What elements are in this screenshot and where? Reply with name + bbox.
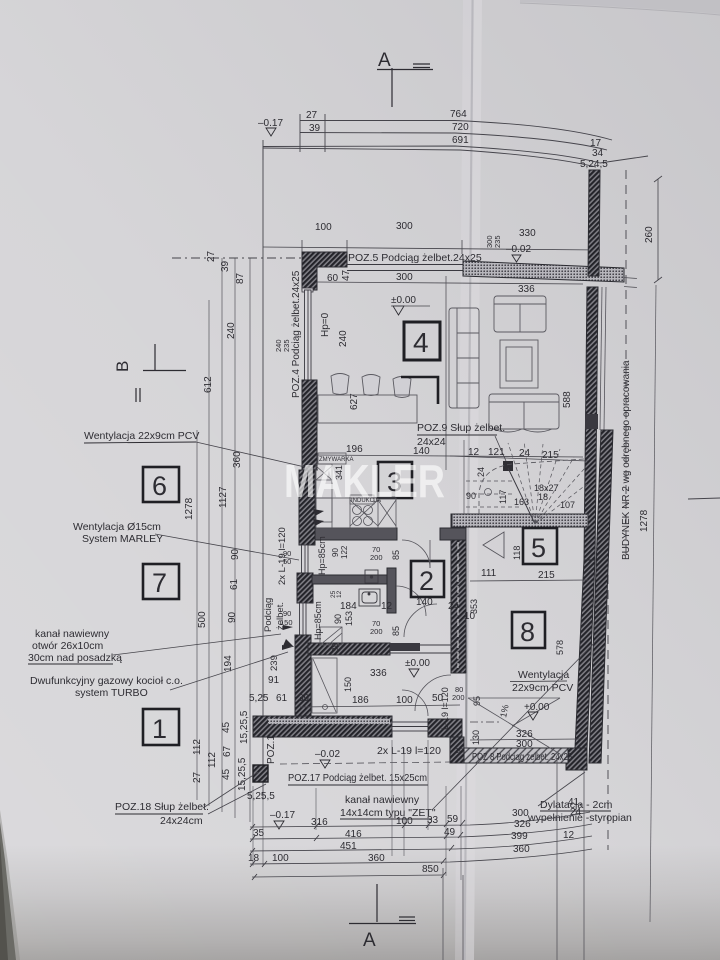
svg-text:200: 200 bbox=[370, 553, 383, 562]
svg-text:184: 184 bbox=[340, 601, 357, 612]
svg-text:6: 6 bbox=[152, 471, 167, 501]
svg-text:90: 90 bbox=[333, 614, 343, 624]
svg-text:194: 194 bbox=[223, 655, 234, 672]
svg-text:kanał nawiewny: kanał nawiewny bbox=[345, 794, 420, 806]
svg-text:122: 122 bbox=[340, 545, 349, 559]
svg-text:Hp=0: Hp=0 bbox=[320, 312, 331, 337]
svg-text:100: 100 bbox=[272, 853, 289, 864]
svg-text:67: 67 bbox=[222, 745, 233, 757]
svg-text:MAKLER: MAKLER bbox=[284, 455, 445, 507]
svg-text:240: 240 bbox=[226, 322, 237, 339]
svg-text:5,25: 5,25 bbox=[249, 693, 269, 704]
svg-text:24x24cm: 24x24cm bbox=[160, 815, 203, 827]
svg-text:5,25,5: 5,25,5 bbox=[247, 791, 275, 802]
svg-text:163: 163 bbox=[514, 497, 529, 507]
svg-text:300: 300 bbox=[396, 272, 413, 283]
svg-text:85: 85 bbox=[391, 550, 401, 560]
svg-text:system TURBO: system TURBO bbox=[75, 687, 148, 699]
svg-text:39: 39 bbox=[309, 123, 321, 134]
svg-text:336: 336 bbox=[518, 284, 535, 295]
svg-text:90: 90 bbox=[227, 611, 238, 623]
svg-text:2: 2 bbox=[419, 566, 434, 596]
svg-text:850: 850 bbox=[422, 864, 439, 875]
svg-text:Dwufunkcyjny gazowy kocioł c.o: Dwufunkcyjny gazowy kocioł c.o. bbox=[30, 675, 183, 687]
svg-text:27: 27 bbox=[206, 250, 217, 262]
svg-text:8: 8 bbox=[520, 617, 535, 647]
svg-text:A: A bbox=[378, 50, 391, 71]
svg-text:33: 33 bbox=[427, 815, 439, 826]
svg-text:18: 18 bbox=[538, 492, 548, 502]
svg-text:Hp=85cm: Hp=85cm bbox=[317, 536, 327, 575]
svg-text:578: 578 bbox=[555, 640, 565, 655]
svg-text:336: 336 bbox=[370, 668, 387, 679]
svg-text:107: 107 bbox=[560, 500, 575, 510]
svg-text:24: 24 bbox=[476, 467, 486, 477]
svg-text:150: 150 bbox=[343, 677, 353, 692]
svg-text:111: 111 bbox=[481, 568, 497, 579]
svg-text:27: 27 bbox=[306, 110, 318, 121]
svg-text:316: 316 bbox=[311, 817, 328, 828]
svg-text:System MARLEY: System MARLEY bbox=[82, 533, 163, 545]
svg-text:Podciąg: Podciąg bbox=[263, 598, 274, 632]
svg-text:100: 100 bbox=[315, 222, 332, 233]
svg-text:12: 12 bbox=[336, 590, 343, 598]
svg-text:12: 12 bbox=[563, 830, 575, 841]
svg-text:118: 118 bbox=[512, 546, 522, 560]
svg-text:22x9cm PCV: 22x9cm PCV bbox=[512, 682, 573, 694]
svg-text:215: 215 bbox=[538, 570, 555, 581]
svg-text:720: 720 bbox=[452, 122, 469, 133]
svg-text:L-19 l=120: L-19 l=120 bbox=[440, 687, 450, 730]
svg-text:±0.00: ±0.00 bbox=[391, 295, 416, 306]
svg-text:POZ.5 Podciąg żelbet.24x25: POZ.5 Podciąg żelbet.24x25 bbox=[348, 252, 482, 264]
svg-text:49: 49 bbox=[444, 827, 456, 838]
svg-text:117: 117 bbox=[498, 490, 508, 504]
svg-text:186: 186 bbox=[352, 695, 369, 706]
svg-text:235: 235 bbox=[282, 339, 291, 352]
svg-text:35: 35 bbox=[253, 828, 265, 839]
svg-text:1127: 1127 bbox=[218, 486, 229, 508]
svg-text:200: 200 bbox=[452, 693, 465, 702]
svg-text:47: 47 bbox=[341, 269, 352, 281]
svg-text:–0.17: –0.17 bbox=[258, 118, 283, 129]
svg-text:360: 360 bbox=[368, 853, 385, 864]
svg-text:59: 59 bbox=[447, 814, 459, 825]
svg-text:BUDYNEK NR 2 wg odrębnego opra: BUDYNEK NR 2 wg odrębnego opracowania bbox=[621, 360, 632, 560]
svg-text:764: 764 bbox=[450, 109, 467, 120]
svg-text:4: 4 bbox=[413, 327, 429, 358]
svg-text:588: 588 bbox=[562, 391, 573, 408]
svg-text:140: 140 bbox=[416, 597, 433, 608]
svg-text:2x L-19 l=120: 2x L-19 l=120 bbox=[377, 745, 441, 757]
svg-text:330: 330 bbox=[519, 228, 536, 239]
svg-text:360: 360 bbox=[232, 451, 243, 468]
svg-text:15,25,5: 15,25,5 bbox=[239, 710, 250, 744]
svg-text:POZ.18 Słup żelbet.: POZ.18 Słup żelbet. bbox=[115, 801, 209, 813]
svg-text:–0.02: –0.02 bbox=[315, 749, 340, 760]
svg-text:240: 240 bbox=[338, 330, 349, 347]
svg-text:24: 24 bbox=[570, 807, 582, 818]
svg-text:90: 90 bbox=[230, 548, 241, 560]
svg-text:10: 10 bbox=[455, 746, 463, 755]
svg-text:326: 326 bbox=[514, 819, 531, 830]
svg-text:1%: 1% bbox=[498, 704, 510, 719]
svg-text:14x14cm typu "ZET": 14x14cm typu "ZET" bbox=[340, 807, 436, 819]
svg-text:5: 5 bbox=[531, 533, 546, 563]
svg-text:612: 612 bbox=[203, 376, 214, 393]
svg-text:300: 300 bbox=[512, 808, 529, 819]
svg-text:90: 90 bbox=[283, 609, 291, 618]
svg-text:45: 45 bbox=[221, 768, 232, 780]
svg-text:1: 1 bbox=[152, 714, 167, 744]
svg-text:196: 196 bbox=[346, 444, 363, 455]
svg-text:112: 112 bbox=[192, 739, 203, 755]
svg-text:Hp=85cm: Hp=85cm bbox=[313, 601, 323, 640]
svg-text:34: 34 bbox=[592, 148, 604, 159]
svg-text:30cm nad posadzką: 30cm nad posadzką bbox=[28, 652, 122, 664]
svg-text:300: 300 bbox=[396, 221, 413, 232]
svg-text:POZ.17 Podciąg żelbet. 15x25c: POZ.17 Podciąg żelbet. 15x25cm bbox=[288, 772, 427, 784]
svg-text:90: 90 bbox=[331, 548, 340, 557]
svg-text:7: 7 bbox=[152, 568, 167, 598]
svg-text:POZ.9 Słup żelbet.: POZ.9 Słup żelbet. bbox=[417, 422, 505, 434]
svg-text:130: 130 bbox=[471, 730, 481, 745]
svg-text:–0.02: –0.02 bbox=[506, 244, 531, 255]
svg-text:61: 61 bbox=[276, 693, 288, 704]
svg-text:360: 360 bbox=[513, 844, 530, 855]
svg-text:27: 27 bbox=[192, 771, 203, 783]
svg-text:45: 45 bbox=[221, 721, 232, 733]
svg-text:153: 153 bbox=[344, 611, 354, 626]
svg-text:260: 260 bbox=[644, 226, 655, 243]
svg-text:38: 38 bbox=[331, 643, 340, 652]
svg-text:Wentylacja Ø15cm: Wentylacja Ø15cm bbox=[73, 521, 161, 533]
svg-text:150: 150 bbox=[280, 618, 293, 627]
svg-text:87: 87 bbox=[235, 272, 246, 284]
svg-text:90: 90 bbox=[466, 491, 476, 501]
svg-text:91: 91 bbox=[268, 675, 280, 686]
svg-text:39: 39 bbox=[220, 260, 231, 272]
svg-text:112: 112 bbox=[207, 752, 218, 768]
svg-text:100: 100 bbox=[396, 816, 413, 827]
svg-text:200: 200 bbox=[370, 627, 383, 636]
svg-text:691: 691 bbox=[452, 135, 469, 146]
svg-text:10: 10 bbox=[464, 611, 476, 622]
svg-text:416: 416 bbox=[345, 829, 362, 840]
svg-text:61: 61 bbox=[229, 578, 240, 590]
svg-text:12: 12 bbox=[381, 601, 393, 612]
svg-text:–0.17: –0.17 bbox=[270, 810, 295, 821]
svg-text:B: B bbox=[113, 361, 132, 372]
svg-text:300: 300 bbox=[516, 739, 533, 750]
svg-text:15,25,5: 15,25,5 bbox=[237, 757, 248, 791]
svg-text:60: 60 bbox=[327, 273, 339, 284]
svg-text:24: 24 bbox=[519, 448, 531, 459]
svg-text:Wentylacja: Wentylacja bbox=[518, 669, 569, 681]
svg-text:kanał nawiewny: kanał nawiewny bbox=[35, 628, 110, 640]
svg-text:POZ.4 Podciąg żelbet.24x25: POZ.4 Podciąg żelbet.24x25 bbox=[291, 270, 302, 398]
svg-text:235: 235 bbox=[493, 235, 502, 248]
svg-text:1278: 1278 bbox=[639, 509, 650, 532]
svg-text:451: 451 bbox=[340, 841, 357, 852]
svg-text:24: 24 bbox=[448, 601, 460, 612]
svg-text:18: 18 bbox=[248, 853, 260, 864]
svg-text:39: 39 bbox=[298, 693, 310, 704]
svg-text:399: 399 bbox=[511, 831, 528, 842]
svg-text:otwór 26x10cm: otwór 26x10cm bbox=[32, 640, 103, 652]
svg-text:Wentylacja 22x9cm PCV: Wentylacja 22x9cm PCV bbox=[84, 430, 199, 442]
svg-text:500: 500 bbox=[197, 611, 208, 628]
svg-text:85: 85 bbox=[391, 626, 401, 636]
svg-text:100: 100 bbox=[396, 695, 413, 706]
svg-text:1278: 1278 bbox=[184, 497, 195, 520]
svg-text:±0.00: ±0.00 bbox=[405, 658, 430, 669]
svg-text:A: A bbox=[363, 930, 376, 951]
